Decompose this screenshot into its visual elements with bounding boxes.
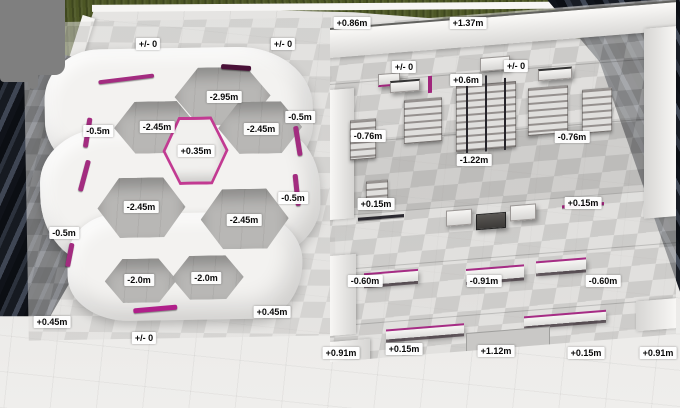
elevation-label: -2.95m — [207, 91, 242, 103]
elevation-label: +/- 0 — [271, 38, 295, 50]
elevation-label: +0.91m — [640, 347, 677, 359]
elevation-label: -0.91m — [467, 275, 502, 287]
elevation-label: -0.5m — [49, 227, 79, 239]
elevation-label: +1.37m — [450, 17, 487, 29]
elevation-label: -0.5m — [83, 125, 113, 137]
elevation-label: +0.91m — [323, 347, 360, 359]
elevation-label: -2.45m — [244, 123, 279, 135]
elevation-label: -0.60m — [348, 275, 383, 287]
elevation-label: -2.45m — [227, 214, 262, 226]
elevation-label: +/- 0 — [136, 38, 160, 50]
elevation-label: +0.45m — [254, 306, 291, 318]
elevation-label: -0.5m — [278, 192, 308, 204]
elevation-label: -2.0m — [191, 272, 221, 284]
elevation-label: -0.60m — [586, 275, 621, 287]
elevation-label: +0.35m — [178, 145, 215, 157]
elevation-label: +/- 0 — [504, 60, 528, 72]
elevation-label: -2.45m — [124, 201, 159, 213]
elevation-label: +0.86m — [334, 17, 371, 29]
elevation-label: +/- 0 — [132, 332, 156, 344]
elevation-label: -0.76m — [351, 130, 386, 142]
elevation-label: +0.15m — [568, 347, 605, 359]
elevation-label: +/- 0 — [392, 61, 416, 73]
elevation-label: +0.45m — [34, 316, 71, 328]
elevation-labels-layer: +/- 0+/- 0-2.95m-0.5m-2.45m-2.45m-0.5m+0… — [0, 0, 680, 408]
elevation-label: +0.15m — [386, 343, 423, 355]
elevation-label: -0.5m — [285, 111, 315, 123]
elevation-label: +1.12m — [478, 345, 515, 357]
elevation-label: -1.22m — [457, 154, 492, 166]
elevation-label: +0.6m — [450, 74, 482, 86]
elevation-label: -2.0m — [124, 274, 154, 286]
elevation-label: -2.45m — [140, 121, 175, 133]
elevation-label: +0.15m — [565, 197, 602, 209]
elevation-label: -0.76m — [555, 131, 590, 143]
elevation-label: +0.15m — [358, 198, 395, 210]
skatepark-render: +/- 0+/- 0-2.95m-0.5m-2.45m-2.45m-0.5m+0… — [0, 0, 680, 408]
